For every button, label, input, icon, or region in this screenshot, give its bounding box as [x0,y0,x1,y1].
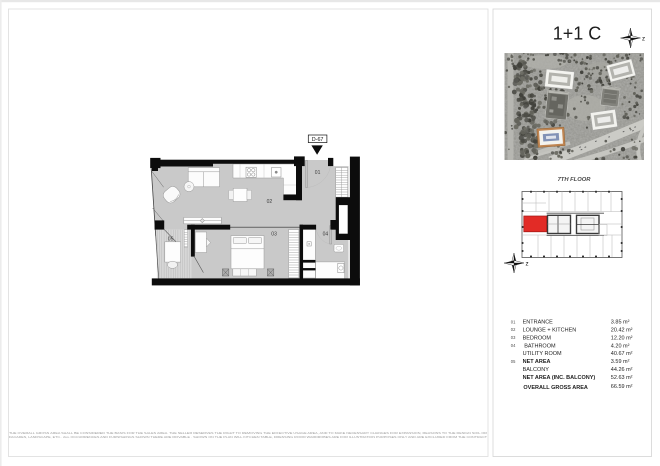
svg-text:OVERALL GROSS AREA: OVERALL GROSS AREA [523,385,588,391]
svg-text:z: z [642,35,645,42]
svg-text:THE OVERALL GROSS AREA SHALL B: THE OVERALL GROSS AREA SHALL BE CONSIDER… [9,431,487,435]
svg-text:12.20 m²: 12.20 m² [611,335,633,341]
svg-text:3.59 m²: 3.59 m² [611,359,630,365]
svg-text:D-67: D-67 [312,137,324,143]
svg-text:02: 02 [267,199,273,205]
svg-text:03: 03 [511,335,516,340]
svg-text:05: 05 [168,237,174,243]
svg-text:UTILITY ROOM: UTILITY ROOM [523,351,562,357]
svg-text:02: 02 [511,327,516,332]
svg-text:LOUNGE + KITCHEN: LOUNGE + KITCHEN [523,328,577,334]
svg-text:NET AREA (INC. BALCONY): NET AREA (INC. BALCONY) [523,375,596,381]
svg-text:66.59 m²: 66.59 m² [611,384,633,390]
svg-text:05: 05 [511,359,516,364]
svg-text:03: 03 [271,231,277,237]
svg-text:FACADES, LANDSCAPE, ETC.· ALL: FACADES, LANDSCAPE, ETC.· ALL OCCURRENCE… [9,435,487,439]
svg-text:3.85 m²: 3.85 m² [611,320,630,326]
svg-text:ENTRANCE: ENTRANCE [523,320,554,326]
svg-text:z: z [526,260,529,267]
svg-text:40.67 m²: 40.67 m² [611,351,633,357]
svg-text:BALCONY: BALCONY [523,367,550,373]
svg-text:52.63 m²: 52.63 m² [611,375,633,381]
svg-text:01: 01 [511,319,516,324]
svg-text:01: 01 [315,170,321,176]
svg-text:NET AREA: NET AREA [523,359,551,365]
svg-text:04: 04 [323,231,329,237]
svg-text:1+1 C: 1+1 C [553,24,602,44]
svg-text:20.42 m²: 20.42 m² [611,328,633,334]
svg-text:BATHROOM: BATHROOM [524,343,556,349]
svg-text:4.20 m²: 4.20 m² [611,343,630,349]
svg-text:04: 04 [511,343,516,348]
svg-text:44.26 m²: 44.26 m² [611,367,633,373]
svg-text:7TH FLOOR: 7TH FLOOR [558,177,592,183]
svg-text:BEDROOM: BEDROOM [523,335,552,341]
